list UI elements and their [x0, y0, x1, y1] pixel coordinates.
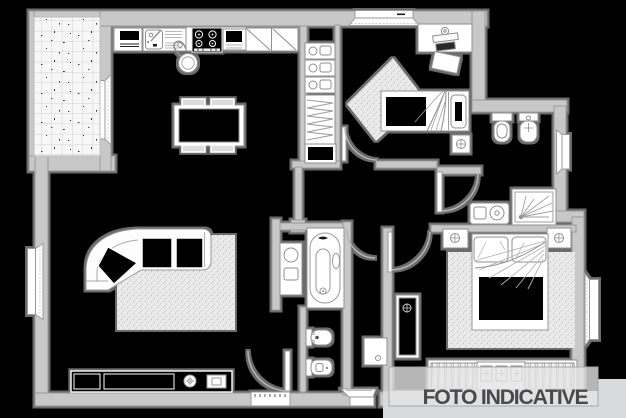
svg-text:FOTO INDICATIVE: FOTO INDICATIVE — [423, 386, 589, 409]
